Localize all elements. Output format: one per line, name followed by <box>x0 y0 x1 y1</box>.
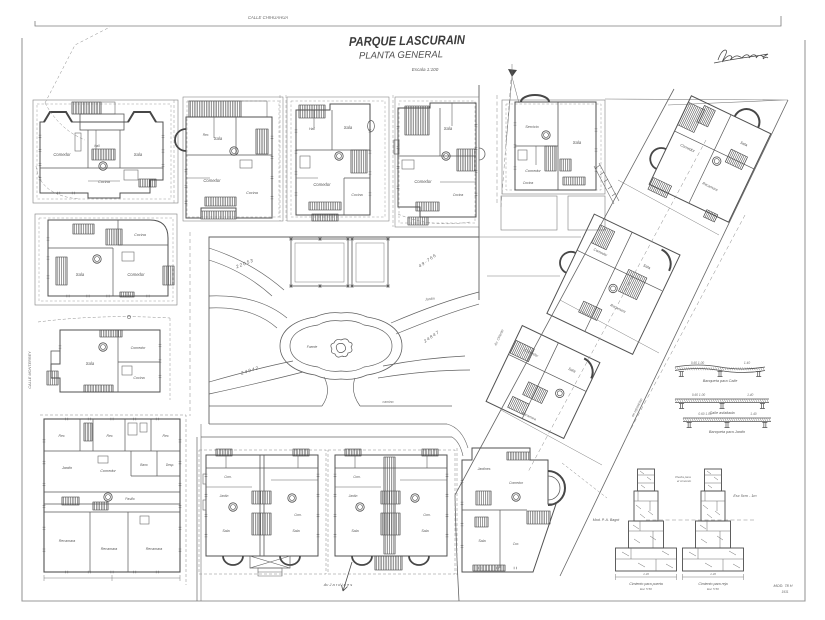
svg-text:camino: camino <box>383 400 394 404</box>
svg-text:Cocina: Cocina <box>351 193 362 197</box>
svg-text:Jardines: Jardines <box>477 467 491 471</box>
svg-text:Rec.: Rec. <box>107 434 114 438</box>
svg-text:1.40: 1.40 <box>750 412 756 416</box>
svg-text:Jardin: Jardin <box>220 494 229 498</box>
svg-text:Comedor: Comedor <box>127 272 145 277</box>
svg-text:Recamara: Recamara <box>59 539 76 543</box>
svg-text:PLANTA GENERAL: PLANTA GENERAL <box>359 49 443 61</box>
svg-text:Sala: Sala <box>573 140 582 145</box>
svg-text:Sala: Sala <box>478 539 485 543</box>
svg-text:Sala: Sala <box>86 361 95 366</box>
svg-text:Fuente: Fuente <box>307 345 318 349</box>
svg-text:CALLE MONTERREY: CALLE MONTERREY <box>28 351 32 389</box>
svg-text:Recamara: Recamara <box>146 547 163 551</box>
svg-text:1931: 1931 <box>781 590 788 594</box>
svg-text:Desp.: Desp. <box>166 463 174 467</box>
svg-text:Cimiento para puerta: Cimiento para puerta <box>629 582 663 586</box>
svg-text:Pasillo: Pasillo <box>125 497 135 501</box>
svg-text:Calle asfaltada: Calle asfaltada <box>709 411 734 415</box>
svg-text:Cocina: Cocina <box>134 233 146 237</box>
svg-text:Banqueta para Jardin: Banqueta para Jardin <box>709 430 745 434</box>
svg-text:hall: hall <box>94 144 100 148</box>
svg-text:0.60 1.00: 0.60 1.00 <box>698 412 712 416</box>
svg-text:Sala: Sala <box>444 126 453 131</box>
svg-text:Sala: Sala <box>134 152 143 157</box>
svg-text:MOD. 78 H: MOD. 78 H <box>774 584 793 588</box>
svg-text:PARQUE LASCURAIN: PARQUE LASCURAIN <box>349 32 466 49</box>
svg-text:0.60 1.00: 0.60 1.00 <box>692 393 706 397</box>
svg-text:Av J a r d i n e s: Av J a r d i n e s <box>323 582 353 587</box>
svg-text:Sala: Sala <box>214 136 223 141</box>
svg-text:0.60 1.00: 0.60 1.00 <box>691 361 705 365</box>
svg-text:Com.: Com. <box>423 513 431 517</box>
svg-text:Cimiento para reja: Cimiento para reja <box>698 582 727 586</box>
svg-text:Com.: Com. <box>294 513 302 517</box>
svg-text:1.40: 1.40 <box>744 361 750 365</box>
svg-text:Jardin: Jardin <box>349 494 358 498</box>
svg-text:Servicio: Servicio <box>525 125 539 129</box>
svg-text:Mod. P. A. Bagot: Mod. P. A. Bagot <box>593 518 621 522</box>
svg-text:Sala: Sala <box>76 272 85 277</box>
svg-text:Rec.: Rec. <box>203 133 210 137</box>
svg-text:Bano: Bano <box>140 463 148 467</box>
svg-text:Sala: Sala <box>222 529 229 533</box>
svg-text:Coc.: Coc. <box>513 542 520 546</box>
svg-text:Sala: Sala <box>344 125 353 130</box>
svg-text:Com.: Com. <box>353 475 361 479</box>
svg-text:Cocina: Cocina <box>453 193 464 197</box>
svg-text:Esc 5:50: Esc 5:50 <box>707 587 719 591</box>
svg-text:Comedor: Comedor <box>203 178 221 183</box>
svg-text:Rec.: Rec. <box>163 434 170 438</box>
svg-text:Com.: Com. <box>224 475 232 479</box>
svg-text:Cocina: Cocina <box>133 376 144 380</box>
svg-text:Escala 1:100: Escala 1:100 <box>412 67 439 72</box>
svg-text:Rec.: Rec. <box>59 434 66 438</box>
svg-text:Comedor: Comedor <box>525 169 541 173</box>
svg-text:Comedor: Comedor <box>313 182 331 187</box>
svg-text:el cimiento: el cimiento <box>677 479 692 483</box>
svg-text:Comedor: Comedor <box>131 346 147 350</box>
svg-text:Comedor: Comedor <box>509 481 524 485</box>
svg-text:1.20: 1.20 <box>710 572 716 576</box>
svg-text:1.40: 1.40 <box>747 393 753 397</box>
svg-text:1.20: 1.20 <box>643 572 649 576</box>
svg-text:CALLE CHIHUAHUA: CALLE CHIHUAHUA <box>248 15 288 20</box>
svg-text:Sala: Sala <box>351 529 358 533</box>
svg-text:Cocina: Cocina <box>98 180 110 184</box>
svg-text:Sala: Sala <box>292 529 299 533</box>
svg-text:Recamara: Recamara <box>101 547 118 551</box>
svg-text:Cocina: Cocina <box>246 191 258 195</box>
svg-text:Esc 5:50: Esc 5:50 <box>640 587 652 591</box>
svg-text:Esc 5cm - 1m: Esc 5cm - 1m <box>733 494 756 498</box>
svg-text:Sala: Sala <box>421 529 428 533</box>
svg-text:Comedor: Comedor <box>414 179 432 184</box>
svg-text:Cocina: Cocina <box>523 181 534 185</box>
svg-text:Comedor: Comedor <box>100 469 116 473</box>
svg-text:Banqueta para Calle: Banqueta para Calle <box>703 379 738 383</box>
svg-text:Jardin: Jardin <box>61 466 72 470</box>
svg-text:Comedor: Comedor <box>53 152 71 157</box>
